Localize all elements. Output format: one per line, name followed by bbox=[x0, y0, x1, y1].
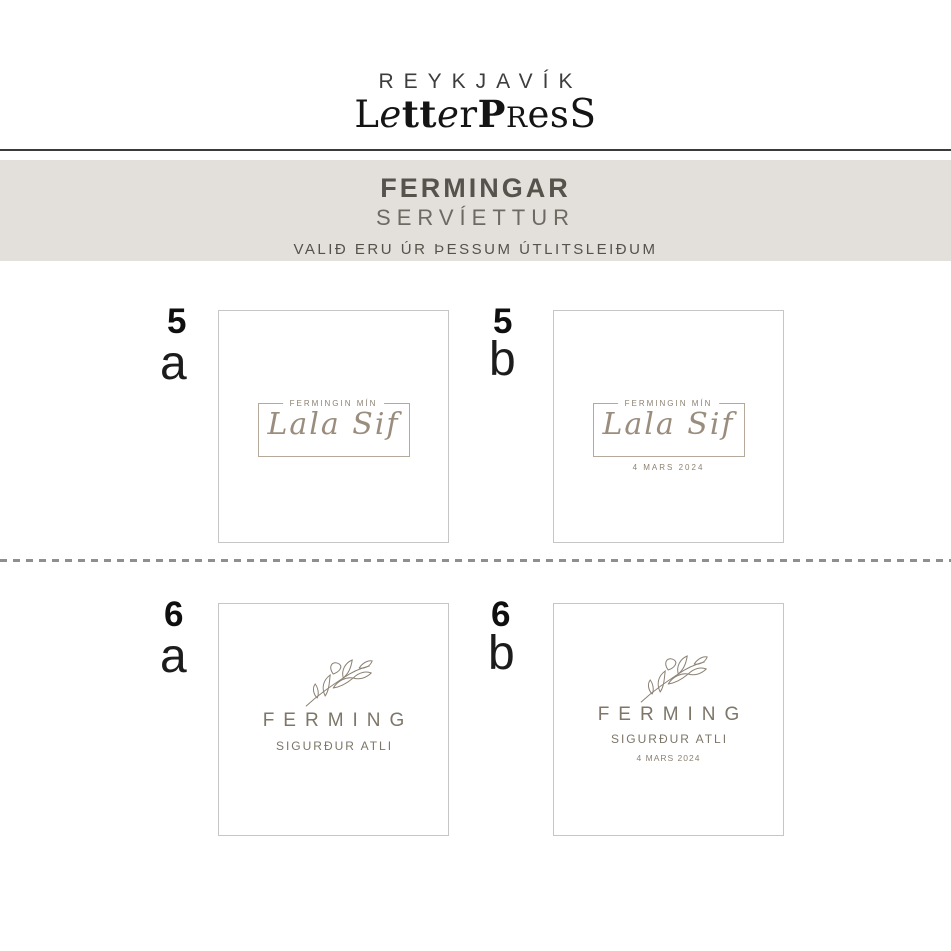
logo-part: R bbox=[506, 101, 528, 134]
design-option-card-5a[interactable]: FERMINGIN MÍN Lala Sif bbox=[218, 310, 449, 543]
option-letter-6b: b bbox=[488, 626, 515, 681]
date-label: 4 MARS 2024 bbox=[554, 753, 783, 763]
option-letter-6a: a bbox=[160, 629, 187, 684]
script-name: Lala Sif bbox=[267, 407, 399, 442]
category-banner: FERMINGAR SERVÍETTUR VALIÐ ERU ÚR ÞESSUM… bbox=[0, 160, 951, 261]
name-frame: FERMINGIN MÍN Lala Sif bbox=[593, 403, 745, 457]
design-option-card-5b[interactable]: FERMINGIN MÍN Lala Sif 4 MARS 2024 bbox=[553, 310, 784, 543]
ferming-title: FERMING bbox=[554, 704, 783, 726]
brand-logo: REYKJAVÍK LetterPResS bbox=[0, 70, 951, 136]
name-frame: FERMINGIN MÍN Lala Sif bbox=[258, 403, 410, 457]
banner-subtitle: SERVÍETTUR bbox=[0, 205, 951, 231]
logo-part: L bbox=[354, 93, 379, 136]
dotted-divider bbox=[0, 559, 951, 562]
branch-sprig-icon bbox=[638, 654, 708, 706]
child-name: SIGURÐUR ATLI bbox=[554, 732, 783, 746]
logo-part: es bbox=[528, 93, 570, 136]
child-name: SIGURÐUR ATLI bbox=[219, 739, 448, 753]
date-label: 4 MARS 2024 bbox=[554, 463, 783, 472]
script-name: Lala Sif bbox=[602, 407, 734, 442]
page-root: REYKJAVÍK LetterPResS FERMINGAR SERVÍETT… bbox=[0, 0, 951, 951]
option-letter-5b: b bbox=[489, 332, 516, 387]
logo-part: e bbox=[379, 93, 401, 136]
logo-part: P bbox=[478, 92, 506, 136]
banner-title: FERMINGAR bbox=[0, 173, 951, 204]
brand-name-letterpress: LetterPResS bbox=[0, 95, 951, 136]
option-letter-5a: a bbox=[160, 336, 187, 391]
logo-part: e bbox=[437, 93, 459, 136]
banner-note: VALIÐ ERU ÚR ÞESSUM ÚTLITSLEIÐUM bbox=[0, 241, 951, 258]
design-option-card-6b[interactable]: FERMING SIGURÐUR ATLI 4 MARS 2024 bbox=[553, 603, 784, 836]
logo-part: S bbox=[569, 92, 596, 137]
branch-sprig-icon bbox=[303, 658, 373, 710]
logo-part: r bbox=[459, 93, 477, 136]
brand-name-reykjavik: REYKJAVÍK bbox=[0, 70, 951, 94]
design-option-card-6a[interactable]: FERMING SIGURÐUR ATLI bbox=[218, 603, 449, 836]
logo-part: tt bbox=[402, 92, 437, 136]
ferming-title: FERMING bbox=[219, 710, 448, 732]
header-rule bbox=[0, 149, 951, 151]
